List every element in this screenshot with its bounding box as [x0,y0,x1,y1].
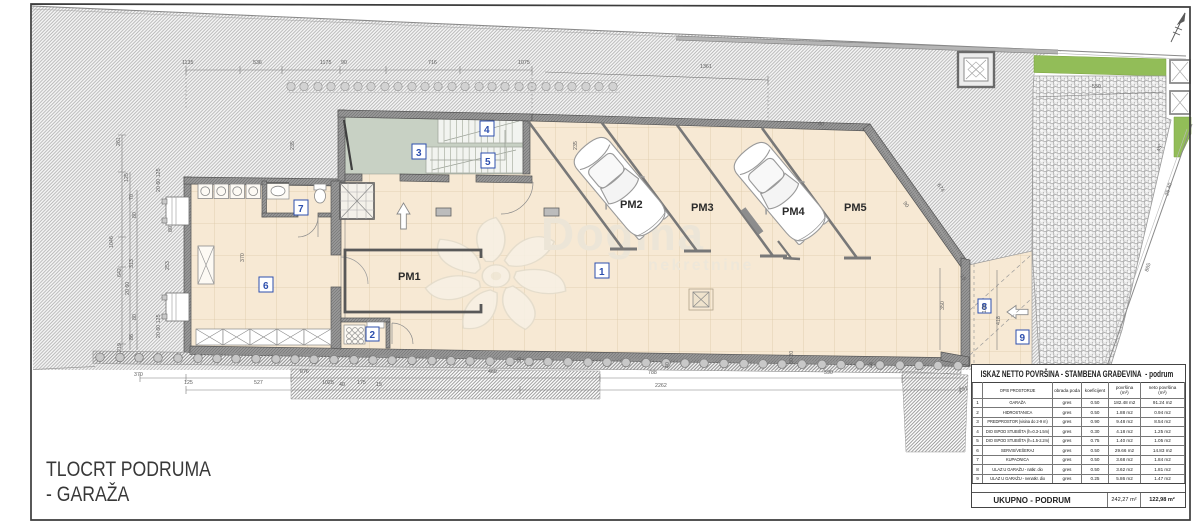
svg-text:2: 2 [370,330,376,341]
svg-text:642: 642 [117,268,123,277]
svg-text:PM1: PM1 [398,271,421,283]
svg-text:44: 44 [869,362,875,368]
svg-text:30 20: 30 20 [789,351,795,364]
svg-text:70: 70 [129,194,135,200]
svg-text:125: 125 [124,173,130,182]
svg-text:175: 175 [357,380,366,386]
svg-text:865: 865 [1144,262,1152,272]
svg-text:5: 5 [485,157,491,168]
svg-text:140: 140 [982,304,988,313]
svg-text:4: 4 [484,125,490,136]
svg-text:PM4: PM4 [782,206,806,218]
svg-text:40: 40 [339,382,345,388]
svg-text:7: 7 [298,204,304,215]
svg-text:1025: 1025 [322,380,334,386]
svg-text:1361: 1361 [700,64,712,70]
svg-text:20 60 125: 20 60 125 [156,168,162,192]
svg-text:6: 6 [263,281,269,292]
svg-text:90: 90 [341,60,347,66]
svg-text:527: 527 [254,380,263,386]
svg-text:80: 80 [132,212,138,218]
svg-text:1046: 1046 [109,236,115,248]
svg-text:788: 788 [648,370,657,376]
svg-text:1075: 1075 [518,60,530,66]
svg-text:PM2: PM2 [620,199,643,211]
svg-text:1135: 1135 [182,60,193,66]
svg-text:20 60 125: 20 60 125 [156,314,162,338]
svg-text:235: 235 [290,141,296,150]
svg-text:nekretnine: nekretnine [648,257,754,274]
svg-text:1175: 1175 [320,60,331,66]
svg-text:676: 676 [300,369,309,375]
svg-text:261: 261 [116,137,122,146]
svg-text:15: 15 [376,382,382,388]
svg-text:60: 60 [818,121,825,128]
svg-text:3: 3 [416,148,422,159]
svg-text:25 40: 25 40 [1164,182,1174,196]
svg-text:35: 35 [517,357,523,363]
svg-text:80: 80 [132,314,138,320]
svg-text:536: 536 [253,60,262,66]
svg-text:313: 313 [129,259,135,268]
svg-text:86: 86 [129,334,135,340]
svg-text:370: 370 [134,372,143,378]
svg-text:550: 550 [1092,84,1101,90]
svg-text:370: 370 [240,253,246,262]
svg-text:PM3: PM3 [691,202,714,214]
svg-text:219: 219 [117,343,123,352]
svg-text:2262: 2262 [655,383,667,389]
svg-text:9: 9 [1020,333,1026,344]
svg-text:40: 40 [665,362,671,368]
svg-text:80: 80 [168,226,174,232]
svg-text:1: 1 [599,267,605,278]
svg-text:20 60: 20 60 [125,282,131,295]
svg-text:460: 460 [488,369,497,375]
svg-text:125: 125 [184,380,193,386]
svg-text:716: 716 [428,60,437,66]
svg-text:253: 253 [165,261,171,270]
svg-text:350: 350 [940,301,946,310]
svg-text:PM5: PM5 [844,202,867,214]
svg-text:235: 235 [573,141,579,150]
svg-text:590: 590 [824,370,833,376]
